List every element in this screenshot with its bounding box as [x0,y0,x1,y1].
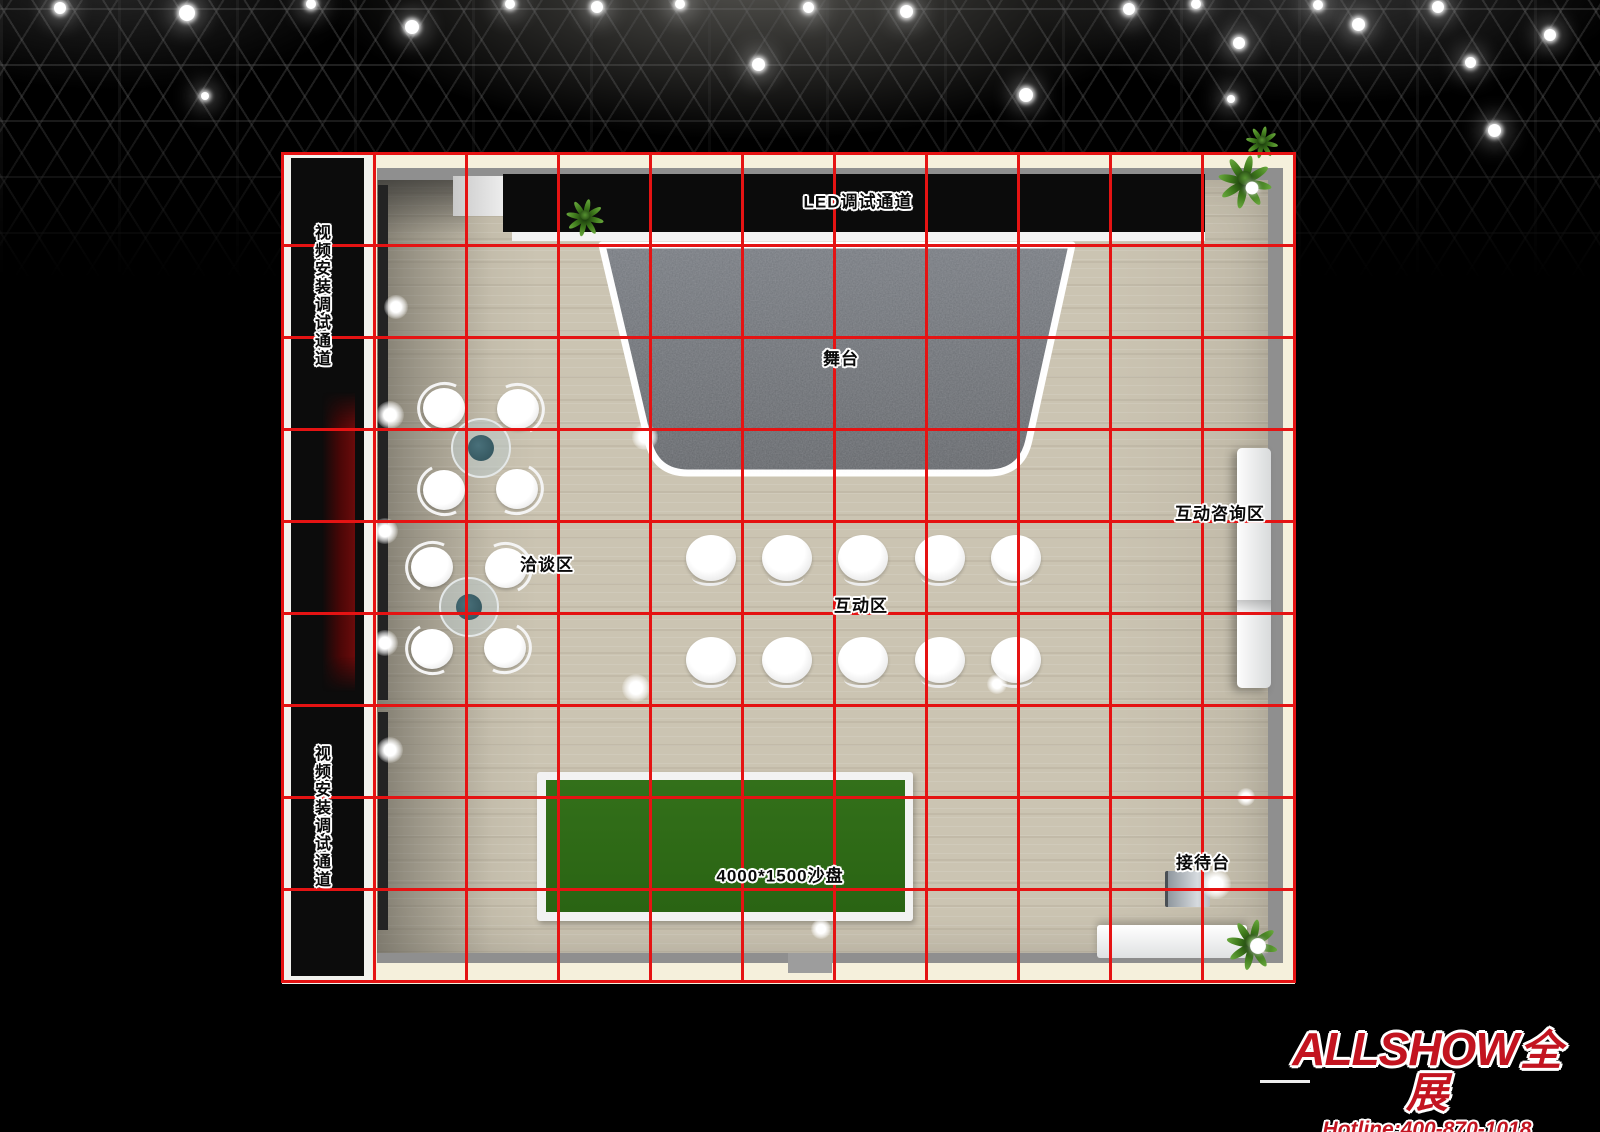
reception-desk [1097,925,1247,958]
stool [686,637,736,683]
table-top [456,594,482,620]
ceiling-light [54,2,66,14]
floor-spotlight [987,674,1007,694]
ceiling-light [752,58,765,71]
sand-table [546,780,905,912]
ceiling-light [803,2,814,13]
ceiling-light [1544,29,1556,41]
floor-spotlight [1237,788,1255,806]
ceiling-light [405,20,419,34]
chair [423,470,465,510]
stool [991,535,1041,581]
floor-spotlight [622,674,650,702]
ceiling-light [900,5,913,18]
label-video-channel-top: 视频安装调试通道 [308,224,332,368]
stool [838,637,888,683]
chair [496,469,538,509]
stool [762,637,812,683]
ceiling-light [1019,88,1033,102]
floor-spotlight [811,919,831,939]
floor-spotlight [372,630,398,656]
label-reception: 接待台 [1176,849,1230,874]
logo-text: ALLSHOW [1292,1023,1518,1075]
label-stage: 舞台 [823,345,859,370]
stool [686,535,736,581]
chair [411,547,453,587]
ceiling-light [1465,57,1476,68]
corner-light [1250,938,1266,954]
led-backglow [322,392,355,692]
left-wall-panel [378,185,388,700]
floor-spotlight [384,295,408,319]
booth-floorplan-render: LED调试通道 视频安装调试通道 视频安装调试通道 舞台 洽谈区 互动区 互动咨… [0,0,1600,1132]
floor-spotlight [1201,869,1231,899]
logo: ALLSHOW全展 Hotline:400-870-1018 [1272,1026,1582,1132]
chair [423,388,465,428]
screen-panel [453,176,508,216]
ceiling-light [1432,1,1444,13]
ceiling-light [179,5,195,21]
logo-dash [1260,1080,1310,1083]
stool [915,637,965,683]
label-negotiation-area: 洽谈区 [520,551,574,576]
floor-spotlight [632,424,658,450]
label-video-channel-bottom: 视频安装调试通道 [308,745,332,889]
label-sand-table: 4000*1500沙盘 [716,862,843,887]
counter-joint [1237,600,1271,614]
ceiling-light [1488,124,1501,137]
ceiling-light [1227,95,1235,103]
stool [762,535,812,581]
plant-core [1258,136,1266,144]
ceiling-light [201,92,209,100]
plant-core [580,210,590,220]
chair [411,629,453,669]
ceiling-light [1352,18,1365,31]
consultation-counter [1237,448,1271,688]
label-consultation-area: 互动咨询区 [1175,500,1265,525]
ceiling-light [1313,0,1323,10]
stool [838,535,888,581]
wall-fixture [788,953,832,973]
floor-spotlight [377,737,403,763]
label-led-channel: LED调试通道 [804,188,913,213]
floor-spotlight [376,401,404,429]
hotline: Hotline:400-870-1018 [1272,1118,1582,1132]
sand-table-frame [537,772,913,921]
corner-light [1246,182,1259,195]
ceiling-light [591,1,603,13]
chair [484,628,526,668]
ceiling-light [1123,3,1135,15]
table-top [468,435,494,461]
floor-spotlight [372,518,398,544]
chair [497,389,539,429]
label-interaction-area: 互动区 [834,592,888,617]
ceiling-light [1233,37,1245,49]
stool [915,535,965,581]
